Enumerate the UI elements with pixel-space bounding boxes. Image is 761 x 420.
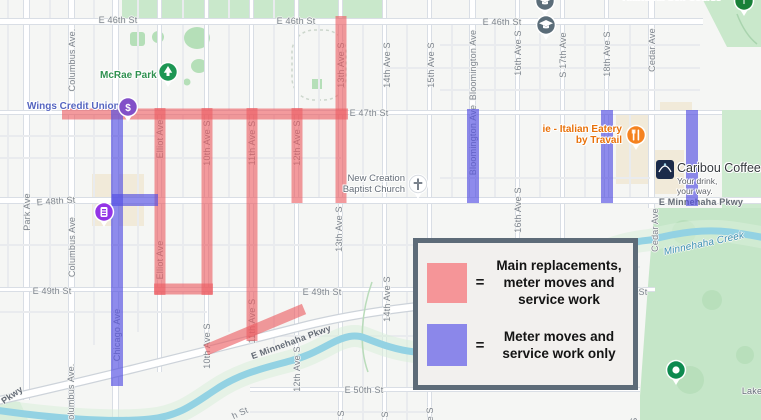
road	[440, 177, 650, 179]
street-label-e-46th-st: E 46th St	[483, 17, 522, 27]
park-strip-east	[722, 110, 761, 208]
legend-line: service work	[493, 291, 625, 308]
svg-text:$: $	[125, 103, 131, 114]
road	[93, 0, 95, 345]
poi-label-line: Wings Credit Union	[27, 101, 120, 112]
poi-label-line: McRae Park	[100, 70, 157, 81]
poi-label-line: by Travail	[527, 135, 622, 146]
street-label-minnehaha-creek: Minnehaha Creek	[663, 230, 745, 258]
street-label-lake: Lake	[742, 386, 761, 396]
map-canvas[interactable]: E 46th StE 46th StE 46th StE 47th StE 48…	[0, 0, 761, 420]
street-label-15th-ave-s: 15th Ave S	[426, 42, 436, 87]
road	[0, 135, 160, 137]
civic-pin-civic-pin[interactable]	[93, 201, 115, 234]
street-label-h-st: h St	[230, 405, 249, 420]
poi-label-italian-eatery-by-travail[interactable]: ie - Italian Eateryby Travail	[527, 124, 622, 146]
street-label-pkwy: Pkwy	[0, 384, 25, 406]
road	[49, 0, 51, 292]
street-label-14th-ave-s: 14th Ave S	[380, 411, 390, 420]
street-label-10th-ave-s: 10th Ave S	[202, 323, 212, 368]
street-label-elliot-ave: Elliot Ave	[155, 120, 165, 159]
legend-label-main-replacements: Main replacements, meter moves and servi…	[493, 257, 625, 308]
park-trees	[312, 79, 322, 89]
street-label-13th-ave-s: 13th Ave S	[336, 410, 346, 420]
street-label-12th-ave-s: 12th Ave S	[292, 120, 302, 165]
street-label-chicago-ave: Chicago Ave	[112, 309, 122, 362]
street-label-16th-ave-s: 16th Ave S	[513, 30, 523, 75]
poi-label-caribou-coffee-tagline[interactable]: Your drink,your way.	[677, 176, 717, 196]
road	[0, 311, 207, 313]
poi-label-line: your way.	[677, 186, 717, 196]
road	[204, 0, 209, 352]
road	[0, 244, 430, 246]
street-label-e-49th-st: E 49th St	[303, 287, 342, 297]
road	[0, 157, 341, 159]
road	[252, 335, 430, 337]
legend-swatch-main-replacements	[427, 263, 467, 303]
road	[7, 0, 9, 292]
poi-label-wings-credit-union[interactable]: Wings Credit Union	[27, 101, 120, 112]
road	[273, 0, 275, 345]
street-label-13th-ave-s: 13th Ave S	[334, 206, 344, 251]
street-label-16th-ave-s: 16th Ave S	[513, 187, 523, 232]
poi-label-caribou-coffee[interactable]: Caribou Coffee	[677, 161, 761, 175]
poi-label-line: ie - Italian Eatery	[527, 124, 622, 135]
school-pin-school-pin-south[interactable]	[535, 14, 557, 47]
street-label-18th-ave-s: 18th Ave S	[602, 31, 612, 76]
legend: = Main replacements, meter moves and ser…	[413, 238, 638, 390]
poi-label-line: Caribou Coffee	[677, 161, 761, 175]
restaurant-pin-italian-eatery-by-travail[interactable]	[625, 124, 647, 157]
poi-label-line: Your drink,	[677, 176, 717, 186]
legend-line: Meter moves and	[493, 328, 625, 345]
street-label-e-46th-st: E 46th St	[277, 16, 316, 26]
road	[137, 0, 139, 332]
street-label-cedar-ave: Cedar Ave	[647, 28, 657, 72]
legend-equals: =	[467, 274, 493, 291]
road	[228, 0, 230, 332]
road	[406, 22, 408, 420]
legend-line: service work only	[493, 345, 625, 362]
street-label-park-ave: Park Ave	[22, 193, 32, 230]
park-dot-pin-park-pin[interactable]	[665, 359, 687, 392]
street-label-elliot-ave: Elliot Ave	[155, 241, 165, 280]
caribou-logo-caribou-coffee[interactable]	[654, 156, 676, 189]
street-label-15th-ave-s: 15th Ave S	[425, 407, 435, 420]
road	[362, 22, 364, 420]
road	[440, 44, 700, 46]
legend-item-service-only: = Meter moves and service work only	[427, 324, 625, 366]
street-label-13th-ave-s: 13th Ave S	[336, 42, 346, 87]
poi-label-line: New Creation	[335, 173, 405, 184]
park-trees	[702, 290, 722, 310]
street-label-11th-ave-s: 11th Ave S	[247, 299, 257, 344]
street-label-11th-ave-s: 11th Ave S	[247, 121, 257, 166]
legend-item-main-replacements: = Main replacements, meter moves and ser…	[427, 257, 625, 308]
church-pin-new-creation-baptist-church[interactable]	[407, 173, 429, 206]
legend-label-service-only: Meter moves and service work only	[493, 328, 625, 362]
park-trees	[184, 79, 191, 86]
legend-swatch-service-only	[427, 324, 467, 366]
street-label-12th-ave-s: 12th Ave S	[292, 346, 302, 391]
poi-label-new-creation-baptist-church[interactable]: New CreationBaptist Church	[335, 173, 405, 195]
street-label-columbus-ave-: Columbus Ave.	[67, 29, 77, 92]
street-label-bloomington-ave: Bloomington Ave	[468, 30, 478, 100]
road	[294, 0, 299, 368]
legend-equals: =	[467, 337, 493, 354]
street-label-e-50th-st: E 50th St	[345, 385, 384, 395]
street-label-cedar-ave: Cedar Ave	[650, 208, 660, 252]
legend-line: Main replacements,	[493, 257, 625, 274]
street-label-14th-ave-s: 14th Ave S	[382, 276, 392, 321]
street-label-e-minnehaha-pkwy: E Minnehaha Pkwy	[659, 197, 743, 207]
street-label-e-47th-st: E 47th St	[350, 108, 389, 118]
street-label-columbus-ave: Columbus Ave	[67, 217, 77, 277]
street-label-e-49th-st: E 49th St	[33, 286, 72, 296]
street-label-bloomington-ave: Bloomington Ave	[468, 105, 478, 175]
street-label-10th-ave-s: 10th Ave S	[202, 120, 212, 165]
road	[157, 0, 162, 372]
poi-label-line: Baptist Church	[335, 184, 405, 195]
street-label-columbus-ave-: Columbus Ave.	[66, 364, 76, 420]
poi-label-mcrae-park[interactable]: McRae Park	[100, 70, 157, 81]
street-label-14th-ave-s: 14th Ave S	[382, 42, 392, 87]
tree-pin-mcrae-park[interactable]	[157, 61, 179, 94]
poi-label-line: Hiawatha Golf Course	[622, 0, 721, 3]
legend-line: meter moves and	[493, 274, 625, 291]
park-trees	[736, 346, 754, 364]
street-label-s-17th-ave: S 17th Ave	[558, 32, 568, 77]
street-label-e-minnehaha-pkwy: E Minnehaha Pkwy	[250, 323, 333, 361]
golf-pin-golf-pin[interactable]	[733, 0, 755, 23]
street-label-e-46th-st: E 46th St	[99, 15, 138, 25]
bank-pin-wings-credit-union[interactable]: $	[117, 96, 139, 129]
road	[440, 89, 700, 91]
poi-label-hiawatha-golf-course[interactable]: Hiawatha Golf Course	[622, 0, 721, 3]
